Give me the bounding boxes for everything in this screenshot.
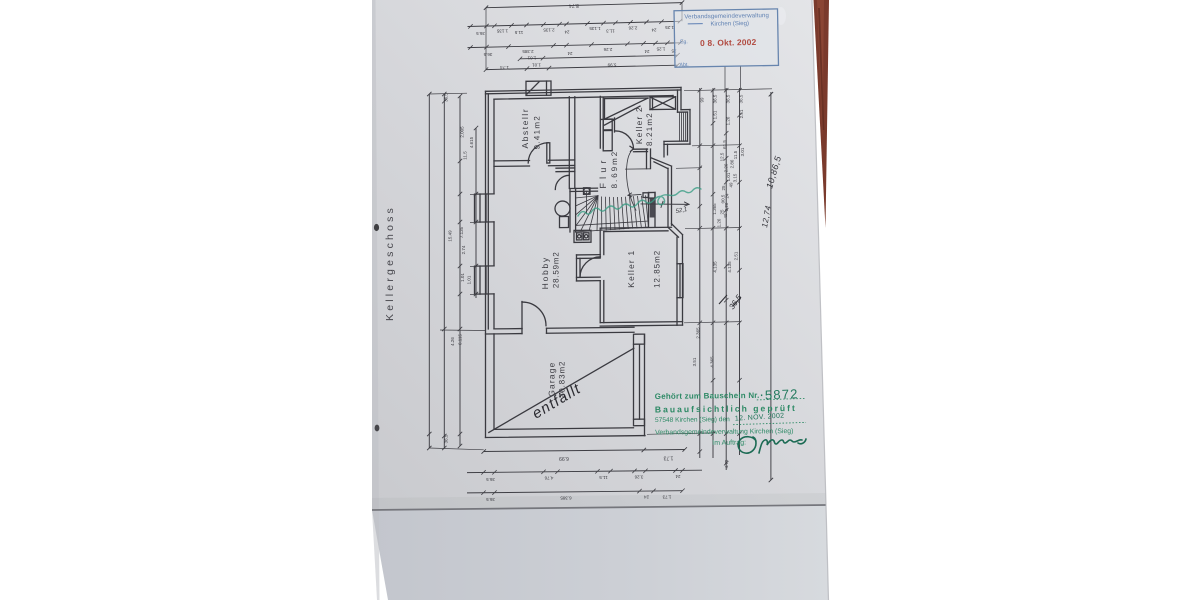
svg-text:24: 24 bbox=[567, 51, 573, 56]
svg-text:6.115: 6.115 bbox=[458, 334, 463, 345]
svg-text:99: 99 bbox=[700, 97, 705, 103]
svg-text:1.365: 1.365 bbox=[712, 203, 717, 215]
svg-text:6.385: 6.385 bbox=[560, 495, 572, 500]
svg-text:0 8. Okt. 2002: 0 8. Okt. 2002 bbox=[700, 37, 757, 48]
svg-text:⋅5872: ⋅5872 bbox=[759, 386, 799, 403]
svg-text:1.74: 1.74 bbox=[500, 65, 509, 70]
svg-text:36.5: 36.5 bbox=[486, 477, 495, 482]
svg-text:24: 24 bbox=[651, 28, 657, 33]
svg-text:61.5: 61.5 bbox=[722, 140, 727, 149]
svg-text:1.135: 1.135 bbox=[496, 28, 508, 33]
svg-text:1.73: 1.73 bbox=[663, 454, 673, 460]
svg-text:Kellergeschoss: Kellergeschoss bbox=[384, 205, 396, 321]
svg-text:Hobby: Hobby bbox=[540, 256, 550, 289]
svg-text:36.5: 36.5 bbox=[739, 94, 744, 103]
svg-text:12.5: 12.5 bbox=[720, 152, 725, 161]
svg-text:2.135: 2.135 bbox=[543, 27, 555, 32]
svg-text:Im Auftrag:: Im Auftrag: bbox=[712, 440, 746, 447]
svg-text:4.135: 4.135 bbox=[727, 261, 732, 273]
svg-text:4.26: 4.26 bbox=[450, 337, 455, 346]
svg-text:8.69m2: 8.69m2 bbox=[610, 150, 619, 189]
svg-text:1.01: 1.01 bbox=[460, 273, 465, 282]
svg-text:2.51: 2.51 bbox=[739, 109, 744, 118]
svg-text:2.26: 2.26 bbox=[724, 202, 729, 211]
svg-text:1.135: 1.135 bbox=[589, 26, 601, 31]
svg-text:1.25: 1.25 bbox=[665, 25, 674, 30]
svg-text:4.75: 4.75 bbox=[724, 459, 729, 468]
svg-text:Abt.: Abt. bbox=[679, 62, 688, 68]
svg-text:11.5: 11.5 bbox=[463, 151, 468, 160]
svg-text:36.5: 36.5 bbox=[444, 434, 449, 443]
svg-text:1.26: 1.26 bbox=[717, 218, 722, 227]
svg-text:7.135: 7.135 bbox=[459, 226, 464, 238]
svg-text:36.5: 36.5 bbox=[476, 31, 485, 36]
svg-text:Flur: Flur bbox=[598, 156, 608, 188]
svg-text:36.5: 36.5 bbox=[726, 94, 731, 103]
svg-text:1.01: 1.01 bbox=[527, 55, 536, 60]
svg-text:Eg.: Eg. bbox=[680, 39, 688, 45]
svg-text:Abstellr: Abstellr bbox=[520, 108, 530, 149]
svg-text:4.135: 4.135 bbox=[713, 261, 718, 273]
svg-text:11.5: 11.5 bbox=[733, 150, 738, 159]
svg-text:57548 Kirchen (Sieg) den: 57548 Kirchen (Sieg) den bbox=[655, 416, 730, 424]
svg-text:1.25: 1.25 bbox=[656, 47, 665, 52]
svg-text:28.59m2: 28.59m2 bbox=[552, 251, 561, 288]
svg-text:3.51: 3.51 bbox=[692, 357, 697, 366]
svg-text:5.99: 5.99 bbox=[607, 62, 616, 67]
svg-text:1.73: 1.73 bbox=[662, 494, 671, 499]
svg-text:2.005: 2.005 bbox=[460, 126, 465, 138]
svg-text:2.86: 2.86 bbox=[730, 159, 735, 168]
svg-text:4.76: 4.76 bbox=[544, 475, 553, 480]
svg-text:36.5: 36.5 bbox=[713, 94, 718, 103]
svg-text:1.01: 1.01 bbox=[532, 63, 541, 68]
svg-text:2.74: 2.74 bbox=[461, 245, 466, 254]
svg-text:Gehört zum Bauschein Nr.: Gehört zum Bauschein Nr. bbox=[655, 391, 760, 401]
svg-text:4.615: 4.615 bbox=[469, 136, 474, 148]
svg-text:3.26: 3.26 bbox=[634, 475, 643, 480]
svg-text:00.5: 00.5 bbox=[721, 194, 726, 203]
svg-text:8.21m2: 8.21m2 bbox=[645, 112, 654, 146]
svg-text:1.01: 1.01 bbox=[726, 172, 731, 181]
svg-text:6.99: 6.99 bbox=[559, 455, 569, 461]
svg-text:24: 24 bbox=[644, 495, 650, 500]
svg-text:2.365: 2.365 bbox=[696, 327, 701, 339]
svg-text:36.5: 36.5 bbox=[483, 52, 492, 57]
svg-text:24: 24 bbox=[644, 49, 650, 54]
svg-text:8.74: 8.74 bbox=[569, 2, 579, 8]
svg-text:2.26: 2.26 bbox=[603, 47, 612, 52]
svg-text:Kirchen (Sieg): Kirchen (Sieg) bbox=[710, 20, 749, 28]
svg-text:2.51: 2.51 bbox=[734, 251, 739, 260]
svg-text:24: 24 bbox=[564, 29, 570, 34]
svg-text:2.385: 2.385 bbox=[522, 49, 534, 54]
svg-text:3.15: 3.15 bbox=[733, 173, 738, 182]
svg-text:9.41m2: 9.41m2 bbox=[533, 115, 542, 150]
svg-text:11.5: 11.5 bbox=[514, 30, 523, 35]
svg-text:2.26: 2.26 bbox=[724, 163, 729, 172]
svg-text:3.01: 3.01 bbox=[740, 147, 745, 156]
svg-text:15.49: 15.49 bbox=[448, 230, 453, 242]
svg-text:1.51: 1.51 bbox=[713, 110, 718, 119]
svg-text:25: 25 bbox=[721, 185, 726, 191]
svg-text:4.365: 4.365 bbox=[710, 356, 715, 368]
svg-text:11.3: 11.3 bbox=[606, 29, 615, 34]
svg-text:36.5: 36.5 bbox=[486, 497, 495, 502]
svg-text:11.5: 11.5 bbox=[599, 475, 608, 480]
svg-text:49: 49 bbox=[723, 213, 728, 219]
svg-text:24: 24 bbox=[675, 474, 681, 479]
svg-text:2.26: 2.26 bbox=[628, 25, 637, 30]
svg-text:12.85m2: 12.85m2 bbox=[653, 250, 662, 288]
svg-text:Verbandsgemeindeverwaltung: Verbandsgemeindeverwaltung bbox=[684, 12, 769, 20]
svg-text:1.26: 1.26 bbox=[726, 116, 731, 125]
svg-text:Keller 1: Keller 1 bbox=[626, 250, 636, 288]
svg-text:Keller 2: Keller 2 bbox=[634, 106, 644, 144]
svg-text:1.01: 1.01 bbox=[467, 275, 472, 284]
svg-text:Verbandsgemeindeverwaltung Kir: Verbandsgemeindeverwaltung Kirchen (Sieg… bbox=[655, 428, 793, 436]
